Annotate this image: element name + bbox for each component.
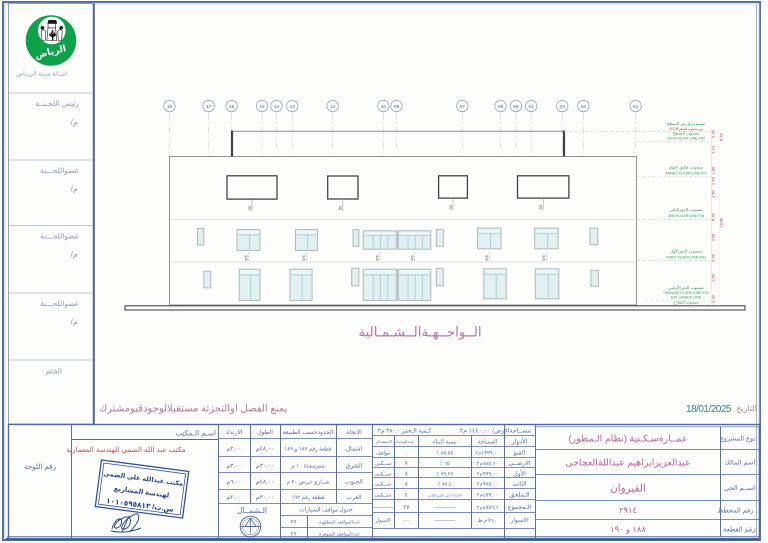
svg-text:رقم القطعة:: رقم القطعة: [723,527,757,534]
svg-text:D8: D8 [449,205,453,210]
svg-text:٤٥٥٦,٦م٢: ٤٥٥٦,٦م٢ [477,505,499,511]
svg-text:الثانى: الثانى [512,481,527,488]
svg-text:عددالمواقف المتوفرة: عددالمواقف المتوفرة [319,532,360,537]
svg-text:الارضــى: الارضــى [508,460,531,467]
svg-text:W5: W5 [376,255,380,260]
svg-text:————: ———— [373,505,395,511]
svg-text:05: 05 [513,104,519,110]
svg-text:اسـم الـمكتب: اسـم الـمكتب [175,429,216,438]
svg-text:٨٨٥,٦٠م٢: ٨٨٥,٦٠م٢ [477,461,498,467]
svg-text:ســكنى: ســكنى [375,493,391,499]
svg-text:٪ ٧٨,٤: ٪ ٧٨,٤ [438,482,452,488]
svg-text:10: 10 [381,104,387,110]
svg-text:04: 04 [529,104,535,110]
svg-text:المساحة: المساحة [478,440,498,446]
svg-text:٤: ٤ [405,492,408,499]
svg-text:٣٠,٠٠م: ٣٠,٠٠م [256,495,274,501]
svg-text:عضواللجـــنة: عضواللجـــنة [40,299,79,308]
svg-text:W5: W5 [485,255,489,260]
svg-text:W5: W5 [244,255,248,260]
svg-text:منسوب الشارع: منسوب الشارع [673,300,698,305]
svg-text:ANNEX FLOOR LINE FIN: ANNEX FLOOR LINE FIN [665,171,707,175]
svg-text:٨: ٨ [405,482,408,488]
svg-text:٢٧: ٢٧ [290,532,296,538]
svg-text:/م: /م [71,185,78,194]
svg-text:٦,٠٠م: ٦,٠٠م [226,480,241,486]
svg-text:٪ ٧٩,٢٧: ٪ ٧٩,٢٧ [436,471,453,477]
svg-text:عضواللجـــنة: عضواللجـــنة [40,232,79,241]
svg-text:الطول: الطول [257,429,273,436]
svg-text:٩٨٥,٠٠م٢: ٩٨٥,٠٠م٢ [477,482,498,488]
svg-text:يمنع الفصل اوالتجزئة مستقبلالو: يمنع الفصل اوالتجزئة مستقبلالوجودقبومشتر… [99,404,288,415]
svg-text:- -: - - [404,518,410,524]
svg-text:09: 09 [394,104,400,110]
svg-text:03: 03 [560,104,566,110]
svg-text:عبدالعزيزابراهيم عبداللةالعجاج: عبدالعزيزابراهيم عبداللةالعجاجى [565,457,690,469]
svg-text:3.10: 3.10 [712,146,716,153]
svg-text:رقم المخطط .: رقم المخطط . [717,508,757,515]
svg-text:الشرق: الشرق [346,463,363,470]
svg-text:جدول مواقف السيارات: جدول مواقف السيارات [299,508,353,514]
svg-text:0.40: 0.40 [712,254,716,261]
svg-text:W5: W5 [542,255,546,260]
svg-text:D8: D8 [248,206,252,211]
svg-text:الأول: الأول [513,469,526,477]
svg-text:منسوب الدورالأرضي: منسوب الدورالأرضي [668,285,704,290]
svg-text:0.30: 0.30 [712,130,716,137]
svg-text:/م: /م [71,318,78,327]
svg-text:01: 01 [633,104,639,110]
svg-text:/م: /م [71,250,78,259]
svg-text:15: 15 [259,104,265,110]
svg-text:مواقف: مواقف [376,451,391,457]
svg-text:عددالوحدات الاستخدام: عددالوحدات الاستخدام [376,439,413,444]
svg-text:رقم اللوحة: رقم اللوحة [24,462,57,471]
svg-text:مكتب عبد الله الضمي للهندسة ال: مكتب عبد الله الضمي للهندسة المعمارية [66,445,186,454]
svg-text:1.50: 1.50 [712,190,716,197]
svg-text:18/01/2025: 18/01/2025 [686,404,732,415]
svg-text:٢,٠٠م: ٢,٠٠م [226,447,241,453]
svg-text:الارتداد: الارتداد [225,429,242,436]
svg-text:٨: ٨ [405,471,408,477]
svg-text:اشمال: اشمال [346,446,363,453]
svg-text:18: 18 [167,104,173,110]
svg-text:قطعة رقم ١٨٧ و ١٨٩: قطعة رقم ١٨٧ و ١٨٩ [284,447,332,453]
svg-text:نوع المشروع:: نوع المشروع: [720,436,757,443]
svg-text:٧: ٧ [405,461,408,467]
svg-text:W5: W5 [302,255,306,260]
svg-text:الـمجموع: الـمجموع [508,504,532,511]
svg-text:8.40: 8.40 [712,213,716,220]
svg-text:16: 16 [229,104,235,110]
svg-text:منسوب طابق علوي: منسوب طابق علوي [669,165,703,170]
svg-text:٩٩٩,٠٠م٢: ٩٩٩,٠٠م٢ [477,471,498,477]
svg-text:١٣٣٩,٠٠م٢: ١٣٣٩,٠٠م٢ [475,451,499,457]
svg-text:٤٨,٠٠م: ٤٨,٠٠م [256,446,274,453]
svg-text:W5: W5 [410,255,414,260]
svg-text:امــانة مدينة الريــاض: امــانة مدينة الريــاض [16,72,67,78]
svg-text:٩٦,٠م ط: ٩٦,٠م ط [478,518,497,524]
svg-text:ســكنى: ســكنى [375,482,391,488]
svg-text:منسوب الدورالثاني: منسوب الدورالثاني [670,207,703,212]
svg-text:13: 13 [290,104,296,110]
svg-text:١٨٨ و ١٩٠: ١٨٨ و ١٩٠ [610,524,646,534]
svg-text:14: 14 [274,104,280,110]
svg-text:02: 02 [581,104,587,110]
svg-text:٣٠,٠٠م: ٣٠,٠٠م [256,464,274,470]
svg-text:القيروان: القيروان [610,484,646,495]
svg-text:الأدوار: الأدوار [510,437,527,446]
svg-text:٤٥,٥٩ ٪ من الدورالثانى: ٤٥,٥٩ ٪ من الدورالثانى [428,494,462,498]
svg-text:————: ———— [434,518,456,524]
svg-text:عضواللجـــنة: عضواللجـــنة [40,166,79,175]
svg-text:الجنوب: الجنوب [345,479,363,486]
svg-text:٢,٠٠م: ٢,٠٠م [226,495,241,501]
svg-text:٤٨,٠٠م: ٤٨,٠٠م [256,479,274,486]
svg-text:ســكنى: ســكنى [375,471,391,477]
svg-text:1.50: 1.50 [712,274,716,281]
svg-text:D8: D8 [539,205,543,210]
svg-text:٢٩١٤: ٢٩١٤ [619,505,637,515]
svg-text:الـشمــال: الـشمــال [237,506,267,515]
svg-text:اسم المالك:: اسم المالك: [724,460,757,467]
svg-text:الــواجــهـةالــشـمـالية: الــواجــهـةالــشـمـالية [358,325,481,341]
svg-text:قطعة رقم ١٩٢: قطعة رقم ١٩٢ [292,495,325,501]
svg-text:3.50: 3.50 [712,234,716,241]
svg-text:0.40: 0.40 [712,177,716,184]
svg-text:ســكنى: ســكنى [375,461,391,467]
svg-text:٤٥٩,٠٠م٢: ٤٥٩,٠٠م٢ [477,493,498,499]
svg-text:07: 07 [460,104,466,110]
svg-text:عمــارةسـكـنية (نظام الـمطور): عمــارةسـكـنية (نظام الـمطور) [568,433,687,444]
svg-text:DECK ROOF LINE FIN: DECK ROOF LINE FIN [667,136,705,140]
svg-text:D8: D8 [339,206,343,211]
svg-text:كـمية الـحفر ٣٨٠,٠ م٣: كـمية الـحفر ٣٨٠,٠ م٣ [378,428,431,435]
svg-text:الـملحق: الـملحق [509,492,529,499]
svg-text:عددالمواقف المطلوبة: عددالمواقف المطلوبة [319,520,360,525]
svg-text:رئيس اللجـنــة: رئيس اللجـنــة [35,99,79,108]
svg-text:الختم: الختم [46,367,62,376]
svg-text:القبو: القبو [513,450,526,457]
svg-text:الاسوار: الاسوار [374,518,390,524]
svg-text:/م: /م [71,118,78,127]
svg-text:مســاحةالارض/ ١٤٤٠,٠٠ م٢: مســاحةالارض/ ١٤٤٠,٠٠ م٢ [460,428,531,435]
svg-text:18.80: 18.80 [720,218,724,228]
svg-text:12: 12 [330,104,336,110]
svg-text:الغرب: الغرب [346,494,362,501]
svg-text:٪ ٦٥: ٪ ٦٥ [440,461,450,467]
svg-text:٣,٠٠م: ٣,٠٠م [226,464,241,470]
svg-text:2ND FLOOR LINE FIN: 2ND FLOOR LINE FIN [668,214,705,218]
svg-text:منسوب السطح: منسوب السطح [673,131,700,136]
svg-text:منسوب الدورالأول: منسوب الدورالأول [670,249,702,254]
svg-text:منسوب وارش السطح: منسوب وارش السطح [667,121,705,126]
svg-text:8.40: 8.40 [720,133,724,140]
svg-text:GROUND FLOOR LINE FIN: GROUND FLOOR LINE FIN [663,291,709,295]
svg-text:————: ———— [434,505,456,511]
svg-text:.: . [405,451,407,457]
svg-text:06: 06 [498,104,504,110]
svg-text:ممرمشاة ١٠ م: ممرمشاة ١٠ م [291,464,324,470]
svg-text:1.80: 1.80 [712,167,716,174]
svg-text:٢٧: ٢٧ [290,520,296,526]
svg-text:التاريخ: التاريخ [736,404,757,413]
svg-text:نسبة البناء: نسبة البناء [433,440,457,446]
svg-text:0.30: 0.30 [712,295,716,302]
svg-text:اســم الحى:: اســم الحى: [724,485,757,492]
svg-text:٪ ٨٥,٥٥: ٪ ٨٥,٥٥ [436,451,453,457]
svg-text:الحدودحسب الطبيعة: الحدودحسب الطبيعة [283,429,334,436]
svg-text:٢٧: ٢٧ [403,505,409,511]
svg-text:الاسوار: الاسوار [509,517,529,524]
svg-text:FIRST FLOOR LINE FIN: FIRST FLOOR LINE FIN [666,255,706,259]
svg-text:الاتجاة: الاتجاة [346,429,362,436]
svg-text:شــارع عـرض ٢٠ م: شــارع عـرض ٢٠ م [286,480,330,486]
svg-text:17: 17 [206,104,212,110]
